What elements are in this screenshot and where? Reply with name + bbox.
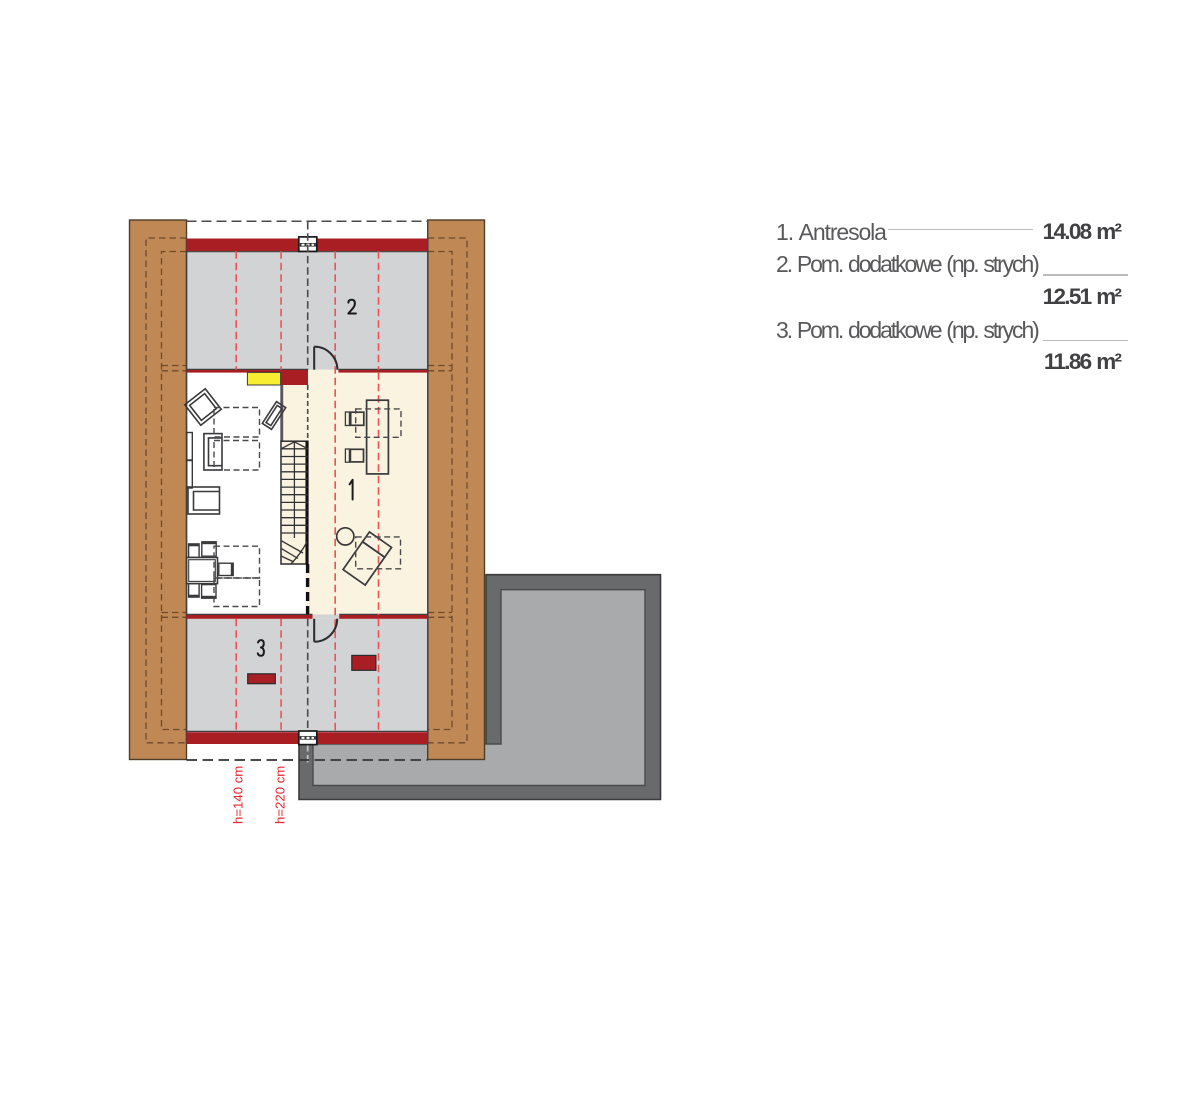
svg-text:h=220 cm: h=220 cm bbox=[272, 766, 287, 824]
svg-text:h=140 cm: h=140 cm bbox=[230, 766, 245, 824]
